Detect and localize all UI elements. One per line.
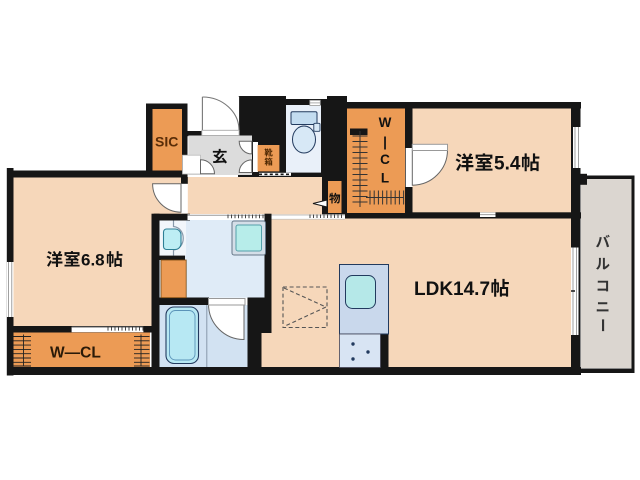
svg-text:C: C xyxy=(380,152,390,167)
svg-text:|: | xyxy=(383,135,387,150)
svg-text:6.8: 6.8 xyxy=(81,251,105,270)
svg-text:5.4: 5.4 xyxy=(494,154,521,175)
svg-text:SIC: SIC xyxy=(155,134,178,150)
svg-text:W—CL: W—CL xyxy=(50,345,101,362)
svg-text:W: W xyxy=(379,115,392,130)
svg-text:LDK14.7: LDK14.7 xyxy=(414,279,490,300)
svg-text:L: L xyxy=(381,171,389,186)
